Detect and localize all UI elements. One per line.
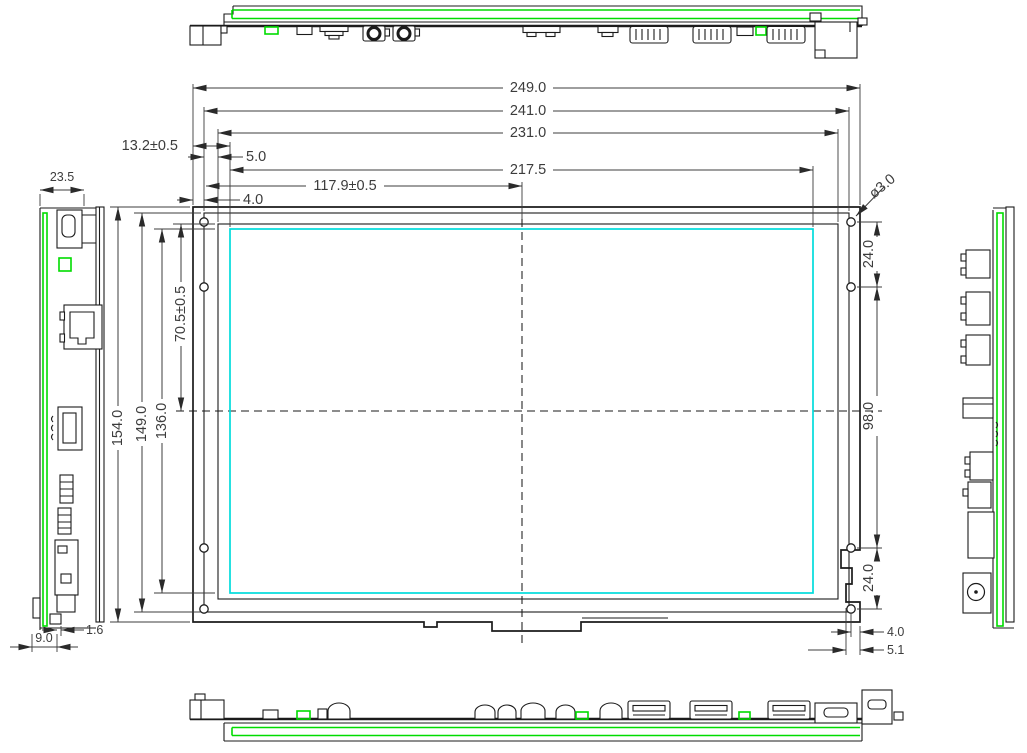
dim-text-connector-protrusion: 9.0 <box>35 631 52 645</box>
micro-usb-side <box>57 210 96 248</box>
connector-tab <box>965 470 970 477</box>
connector-body <box>190 26 221 45</box>
jack-pin <box>974 590 978 594</box>
smd-component <box>297 27 312 35</box>
component-detail <box>325 32 343 36</box>
side-pcb-outline <box>997 213 1003 626</box>
bottom-view <box>190 690 903 741</box>
bottom-pcb-outline <box>232 728 860 736</box>
pin-header-side <box>60 475 73 503</box>
jack-tab <box>858 18 867 25</box>
connector-detail <box>195 694 205 700</box>
connector-opening <box>63 413 76 443</box>
dimension-annotations: 249.0 241.0 231.0 13.2±0.5 5.0 217.5 117… <box>10 80 904 657</box>
connector-body <box>523 27 560 33</box>
ethernet-jack-side <box>60 305 102 349</box>
dim-text-active-height: 136.0 <box>154 403 170 439</box>
usb-tongue <box>695 706 727 712</box>
dim-text-overall-height: 154.0 <box>110 410 126 446</box>
dim-text-module-height: 149.0 <box>134 406 150 442</box>
dim-text-edge-to-active: 13.2±0.5 <box>122 138 178 154</box>
side-pcb-outline <box>43 213 47 626</box>
dim-text-bezel-offset: 5.0 <box>246 149 266 165</box>
top-pcb-outline <box>232 10 860 19</box>
connector-foot <box>527 33 536 37</box>
connector-detail <box>221 26 227 33</box>
dome-component <box>475 705 495 719</box>
usb-tongue <box>773 706 805 712</box>
dim-text-module-width: 241.0 <box>510 103 546 119</box>
smd-component-green <box>59 258 71 271</box>
dim-text-center-width: 117.9±0.5 <box>313 178 376 194</box>
header-connector-side <box>961 250 990 278</box>
mounting-hole <box>847 605 855 613</box>
usb-port-edge <box>693 27 731 44</box>
usb-a-port <box>768 701 810 719</box>
dim-text-overall-width: 249.0 <box>510 80 546 96</box>
usb-a-port <box>628 701 670 719</box>
connector-body <box>598 27 618 33</box>
dim-text-bezel-width: 231.0 <box>510 125 546 141</box>
connector-tab <box>961 313 966 320</box>
header-connector-side <box>961 335 990 365</box>
dim-text-hole-offset-top: 4.0 <box>243 192 263 208</box>
dome-component <box>556 705 575 719</box>
usb-port-edge <box>767 27 805 44</box>
jack-tab <box>60 334 65 342</box>
connector-tab <box>961 297 966 304</box>
connector-tab <box>961 356 966 363</box>
ethernet-jack-edge <box>815 18 867 58</box>
bottom-board-outline <box>224 719 862 741</box>
dim-text-hole-pitch-top: 24.0 <box>861 240 877 268</box>
dim-text-hole-offset-right: 4.0 <box>887 625 904 639</box>
smd-component-green <box>756 27 766 35</box>
power-jack-side <box>963 573 991 613</box>
dome-component <box>600 703 622 719</box>
header-connector-side <box>965 452 993 480</box>
left-side-view <box>33 207 104 630</box>
usb-tongue <box>633 706 665 712</box>
smd-component <box>810 13 821 21</box>
connector-tab <box>961 268 966 275</box>
connector-body <box>963 398 993 418</box>
centerlines <box>176 219 882 648</box>
dimension-drawing-svg: 249.0 241.0 231.0 13.2±0.5 5.0 217.5 117… <box>0 0 1027 753</box>
dim-text-pcb-thickness: 1.6 <box>86 623 103 637</box>
usb-port-edge <box>630 27 668 44</box>
dim-text-side-thickness: 23.5 <box>50 170 74 184</box>
usb-a-port <box>690 701 732 719</box>
large-component-side <box>968 512 994 558</box>
mounting-hole <box>847 218 855 226</box>
smd-component-green <box>265 27 278 34</box>
mounting-hole <box>200 283 208 291</box>
connector-body <box>190 700 224 719</box>
connector-tab <box>965 457 970 464</box>
usb-a-side <box>52 407 83 450</box>
push-button <box>363 26 390 41</box>
button-tab <box>415 29 420 36</box>
dim-text-notch-offset: 5.1 <box>887 643 904 657</box>
mounting-hole <box>200 544 208 552</box>
connector-foot <box>602 33 613 37</box>
pin-header-side <box>58 508 71 534</box>
jack-body <box>815 22 857 58</box>
component-detail <box>320 27 348 32</box>
connector-body <box>58 508 71 534</box>
port-opening <box>868 700 886 709</box>
top-left-connector <box>190 26 227 45</box>
spring-contacts <box>52 416 54 440</box>
push-button <box>393 26 420 41</box>
smd-component <box>737 27 753 36</box>
connector-body <box>966 335 990 365</box>
outer-frame-outline <box>193 207 860 631</box>
display-panel-slab <box>1006 207 1014 622</box>
connector-body <box>966 250 990 278</box>
connector-body <box>966 292 990 325</box>
dome-component <box>328 703 350 719</box>
connector-detail <box>50 614 61 624</box>
micro-usb-port <box>862 690 903 724</box>
speaker-component <box>320 27 348 40</box>
smd-component <box>318 709 327 719</box>
connector-detail <box>61 574 71 583</box>
connector-detail <box>57 595 75 612</box>
port-opening <box>824 708 848 717</box>
connector-body <box>968 482 991 508</box>
dome-component <box>521 703 545 719</box>
dim-text-hole-pitch-bottom: 24.0 <box>861 564 877 592</box>
mounting-hole <box>200 218 208 226</box>
top-board-outline <box>224 6 862 26</box>
hdmi-port <box>815 703 857 723</box>
mounting-hole <box>847 544 855 552</box>
module-outline <box>204 213 849 612</box>
usb-connector-side <box>963 398 998 446</box>
front-view <box>193 207 860 631</box>
jack-tab <box>60 312 65 320</box>
mounting-holes <box>200 218 855 613</box>
top-view <box>190 6 867 58</box>
low-profile-connector <box>523 27 560 37</box>
bottom-left-connector <box>190 694 224 719</box>
dome-component <box>498 705 516 719</box>
connector-opening <box>62 215 75 237</box>
connector-body <box>970 452 993 480</box>
right-side-view <box>961 207 1014 628</box>
button-tab <box>385 29 390 36</box>
connector-tip <box>33 598 40 618</box>
technical-drawing-canvas: 249.0 241.0 231.0 13.2±0.5 5.0 217.5 117… <box>0 0 1027 753</box>
header-connector-side <box>961 292 990 325</box>
dim-text-active-width: 217.5 <box>510 162 546 178</box>
connector-tab <box>961 340 966 347</box>
dim-text-hole-pitch-middle: 98.0 <box>861 402 877 430</box>
smd-component <box>263 710 278 719</box>
connector-detail <box>58 546 67 553</box>
connector-foot <box>546 33 555 37</box>
connector-tab <box>961 254 966 261</box>
header-connector-side <box>963 482 991 508</box>
port-tab <box>894 712 903 720</box>
dim-text-hole-diameter: ø3.0 <box>866 171 899 202</box>
dim-text-v-center: 70.5±0.5 <box>173 286 189 342</box>
connector-stems <box>82 215 96 243</box>
component-detail <box>329 36 339 40</box>
connector-tab <box>963 489 968 496</box>
mounting-hole <box>847 283 855 291</box>
low-profile-connector <box>598 27 618 37</box>
mounting-hole <box>200 605 208 613</box>
